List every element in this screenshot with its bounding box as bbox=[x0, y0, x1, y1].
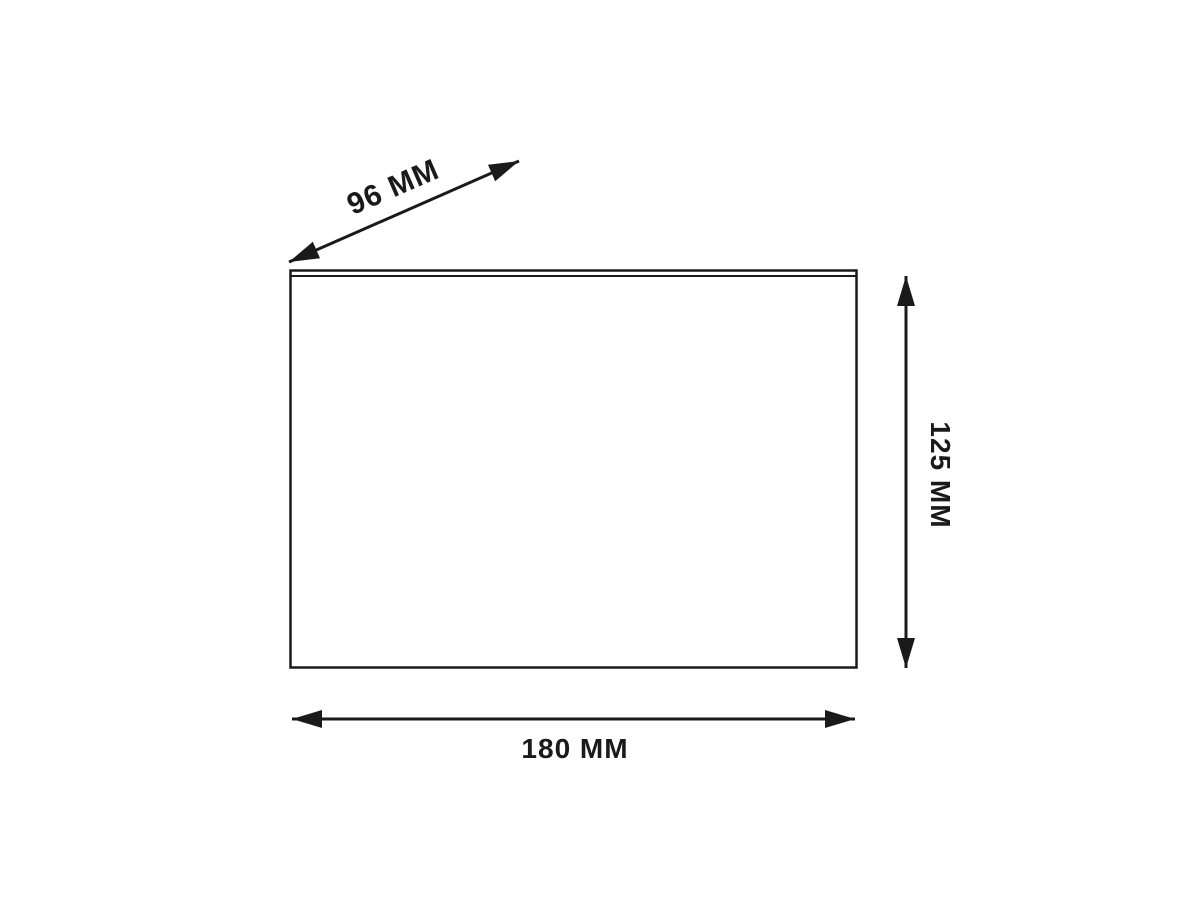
height-dimension-label: 125 MM bbox=[925, 421, 956, 528]
panel-outline bbox=[291, 271, 857, 668]
depth-dimension-label: 96 MM bbox=[342, 153, 444, 222]
width-dimension-label: 180 MM bbox=[521, 733, 628, 764]
dimension-drawing-canvas: 96 MM 125 MM 180 MM bbox=[0, 0, 1200, 900]
dimension-diagram: 96 MM 125 MM 180 MM bbox=[0, 0, 1200, 900]
